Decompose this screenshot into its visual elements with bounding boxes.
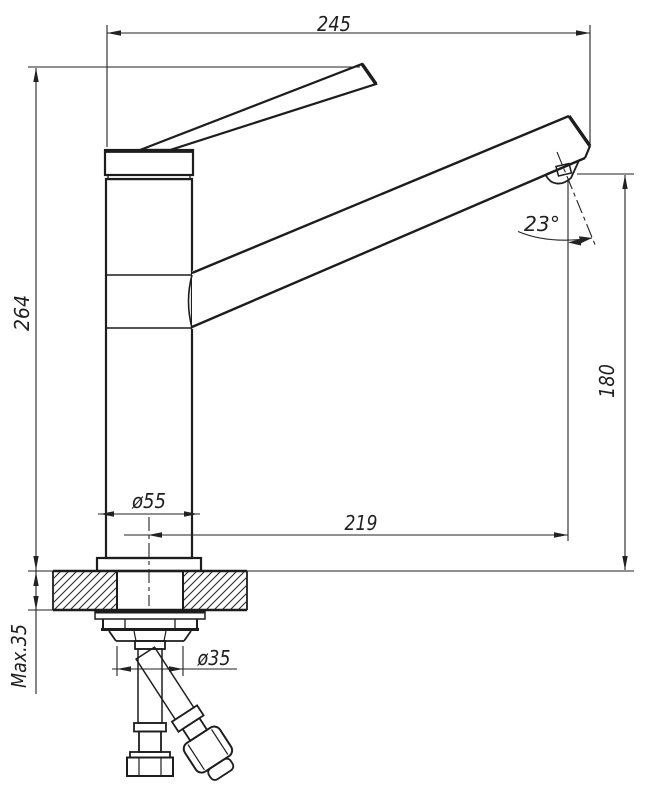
hose-tube-vertical bbox=[139, 732, 161, 753]
faucet-cap bbox=[104, 150, 194, 180]
arrowhead bbox=[169, 666, 183, 671]
arrowhead bbox=[622, 175, 627, 189]
arrowhead bbox=[33, 556, 38, 570]
arrowhead bbox=[33, 596, 38, 610]
dim-overall-width bbox=[107, 25, 590, 147]
label-hole-diameter: ø35 bbox=[197, 646, 231, 670]
threaded-shank bbox=[117, 571, 183, 611]
hose-nut-vertical bbox=[127, 758, 173, 777]
label-spout-reach: 219 bbox=[345, 511, 378, 535]
arrowhead bbox=[33, 572, 38, 586]
supply-hose-vertical bbox=[127, 649, 173, 776]
technical-drawing-sheet: 245 264 180 219 ø55 ø35 Max.35 23° bbox=[0, 0, 648, 797]
arrowhead bbox=[579, 236, 592, 243]
counter-hatch-left bbox=[54, 572, 117, 610]
mounting-hardware bbox=[95, 611, 242, 786]
label-outlet-height: 180 bbox=[595, 364, 619, 398]
label-overall-width: 245 bbox=[317, 12, 351, 36]
arrowhead bbox=[107, 30, 121, 35]
arrowhead bbox=[148, 532, 162, 537]
braided-hose-angled bbox=[136, 647, 194, 719]
label-overall-height: 264 bbox=[10, 295, 34, 331]
mounting-nut bbox=[101, 619, 199, 649]
arrowhead bbox=[33, 68, 38, 82]
label-outlet-angle: 23° bbox=[524, 212, 560, 236]
dimension-lines bbox=[28, 25, 634, 694]
label-max-mount-thickness: Max.35 bbox=[7, 624, 31, 688]
hose-nut-angled bbox=[181, 724, 235, 775]
arrowhead bbox=[622, 556, 627, 570]
counter-hatch-right bbox=[183, 572, 246, 610]
body-joint-lines bbox=[106, 275, 192, 328]
faucet-handle bbox=[140, 64, 376, 150]
hose-ferrule-vertical bbox=[134, 723, 166, 732]
faucet-dimension-drawing: 245 264 180 219 ø55 ø35 Max.35 23° bbox=[0, 0, 648, 797]
label-body-diameter: ø55 bbox=[131, 489, 166, 513]
counter-section bbox=[53, 571, 247, 611]
faucet bbox=[97, 64, 590, 571]
washer bbox=[95, 611, 205, 619]
braided-hose-vertical bbox=[138, 649, 162, 723]
arrowhead bbox=[554, 532, 568, 537]
arrowhead bbox=[117, 666, 131, 671]
arrowhead bbox=[576, 30, 590, 35]
